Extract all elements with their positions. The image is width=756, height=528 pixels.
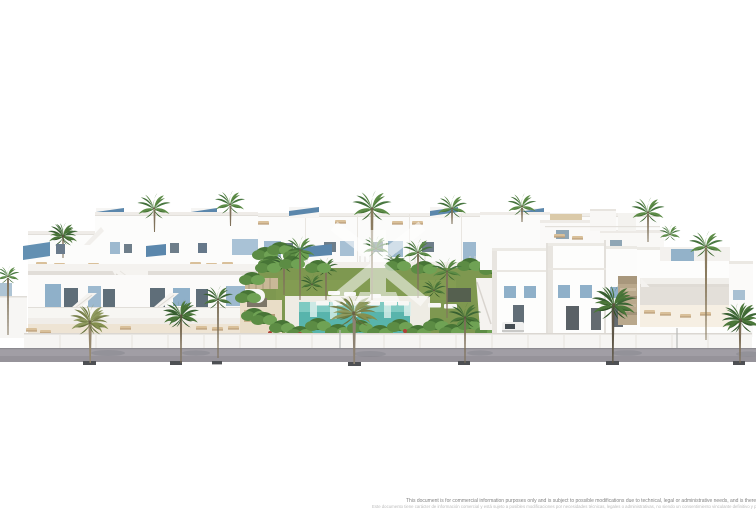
svg-text:Este documento tiene carácter: Este documento tiene carácter de informa… (372, 504, 756, 509)
